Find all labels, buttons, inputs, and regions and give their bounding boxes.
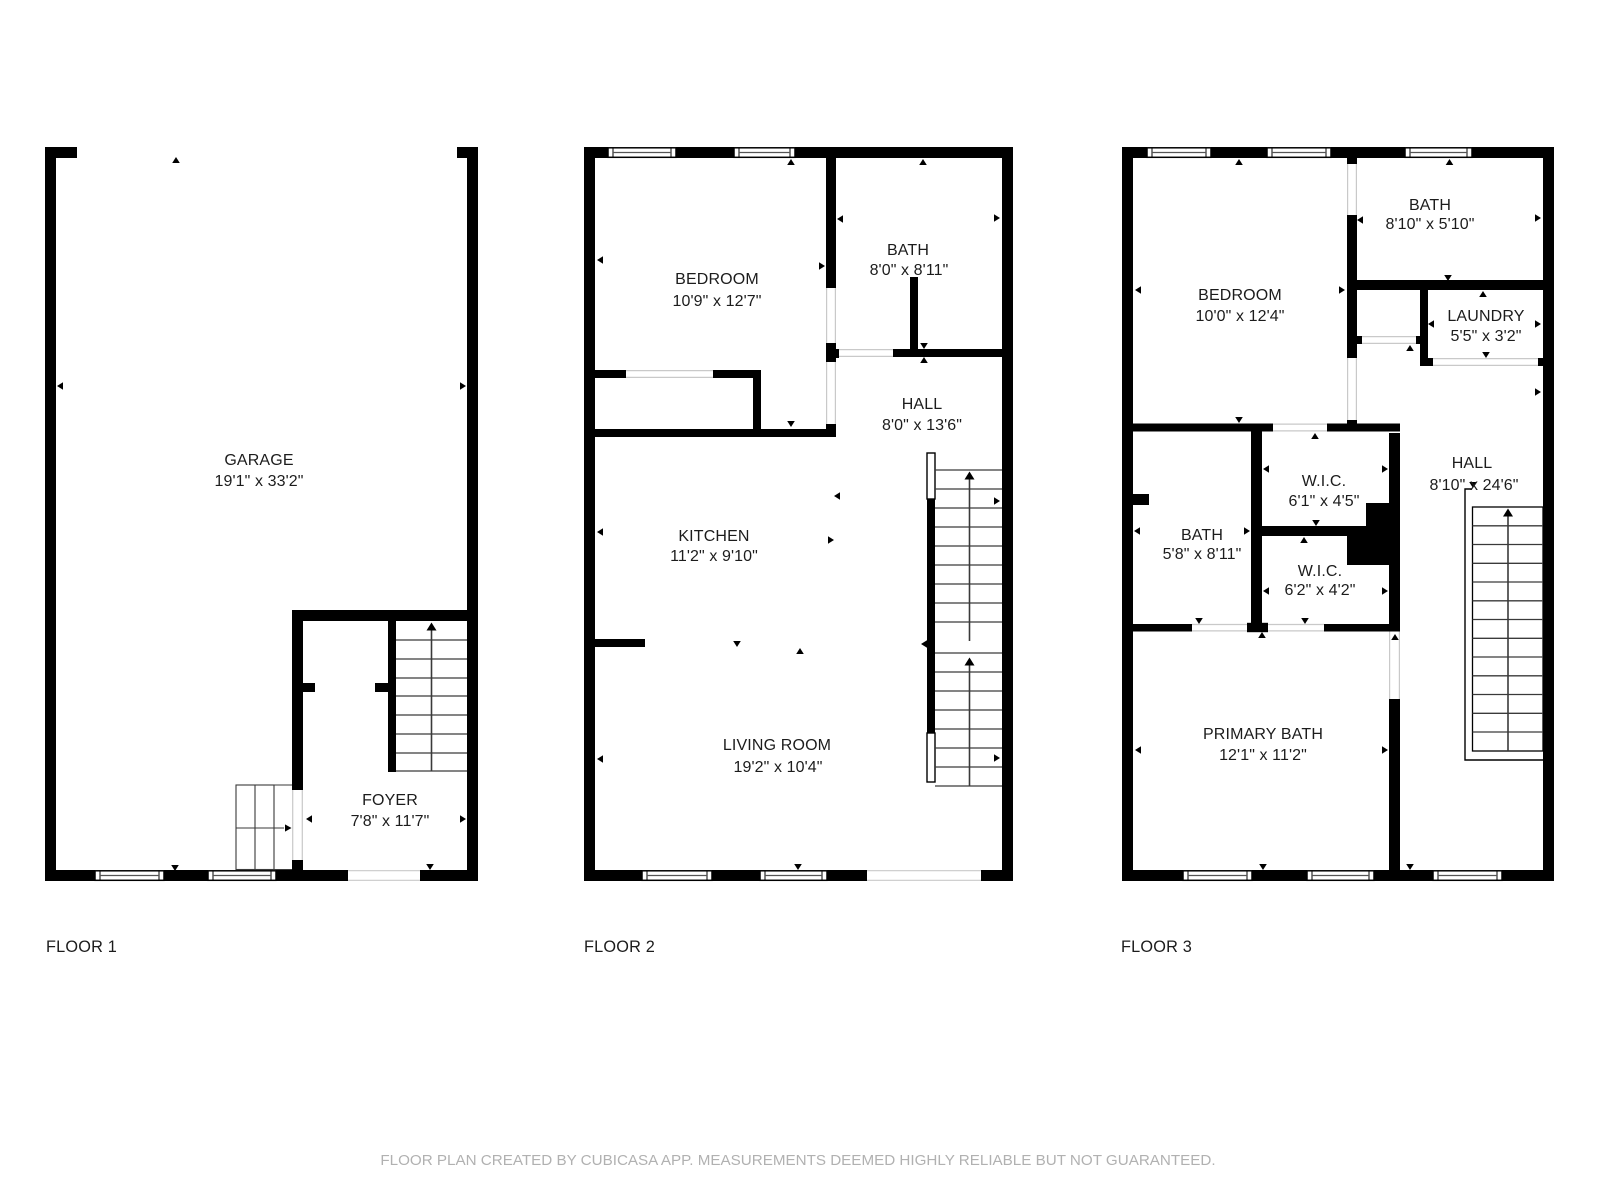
svg-text:BATH: BATH (1409, 197, 1451, 214)
svg-text:12'1" x 11'2": 12'1" x 11'2" (1219, 747, 1307, 764)
svg-text:KITCHEN: KITCHEN (678, 528, 749, 545)
svg-text:LIVING ROOM: LIVING ROOM (723, 737, 831, 754)
svg-text:GARAGE: GARAGE (224, 452, 293, 469)
svg-text:8'0" x 13'6": 8'0" x 13'6" (882, 417, 962, 434)
svg-text:FLOOR PLAN CREATED BY CUBICASA: FLOOR PLAN CREATED BY CUBICASA APP. MEAS… (380, 1152, 1215, 1169)
svg-text:5'5" x 3'2": 5'5" x 3'2" (1450, 328, 1521, 345)
svg-text:BEDROOM: BEDROOM (1198, 287, 1282, 304)
svg-text:10'9" x 12'7": 10'9" x 12'7" (672, 293, 761, 310)
svg-text:W.I.C.: W.I.C. (1298, 563, 1342, 580)
svg-text:11'2" x 9'10": 11'2" x 9'10" (670, 548, 758, 565)
svg-text:HALL: HALL (1452, 455, 1493, 472)
svg-text:FOYER: FOYER (362, 792, 418, 809)
svg-text:BEDROOM: BEDROOM (675, 271, 759, 288)
svg-text:19'1" x 33'2": 19'1" x 33'2" (214, 473, 303, 490)
svg-text:BATH: BATH (887, 242, 929, 259)
svg-text:FLOOR 2: FLOOR 2 (584, 938, 655, 956)
svg-text:6'2" x 4'2": 6'2" x 4'2" (1284, 582, 1355, 599)
svg-text:8'10" x 24'6": 8'10" x 24'6" (1429, 477, 1518, 494)
svg-text:HALL: HALL (902, 396, 943, 413)
svg-text:10'0" x 12'4": 10'0" x 12'4" (1195, 308, 1284, 325)
svg-text:8'10" x 5'10": 8'10" x 5'10" (1385, 216, 1474, 233)
svg-text:7'8" x 11'7": 7'8" x 11'7" (351, 813, 430, 830)
svg-text:PRIMARY BATH: PRIMARY BATH (1203, 726, 1323, 743)
svg-text:19'2" x 10'4": 19'2" x 10'4" (733, 759, 822, 776)
svg-text:8'0" x 8'11": 8'0" x 8'11" (870, 262, 949, 279)
svg-text:BATH: BATH (1181, 527, 1223, 544)
svg-text:5'8" x 8'11": 5'8" x 8'11" (1163, 546, 1242, 563)
svg-text:FLOOR 3: FLOOR 3 (1121, 938, 1192, 956)
svg-text:W.I.C.: W.I.C. (1302, 473, 1346, 490)
svg-text:6'1" x 4'5": 6'1" x 4'5" (1288, 493, 1359, 510)
svg-text:FLOOR 1: FLOOR 1 (46, 938, 117, 956)
svg-text:LAUNDRY: LAUNDRY (1447, 308, 1524, 325)
